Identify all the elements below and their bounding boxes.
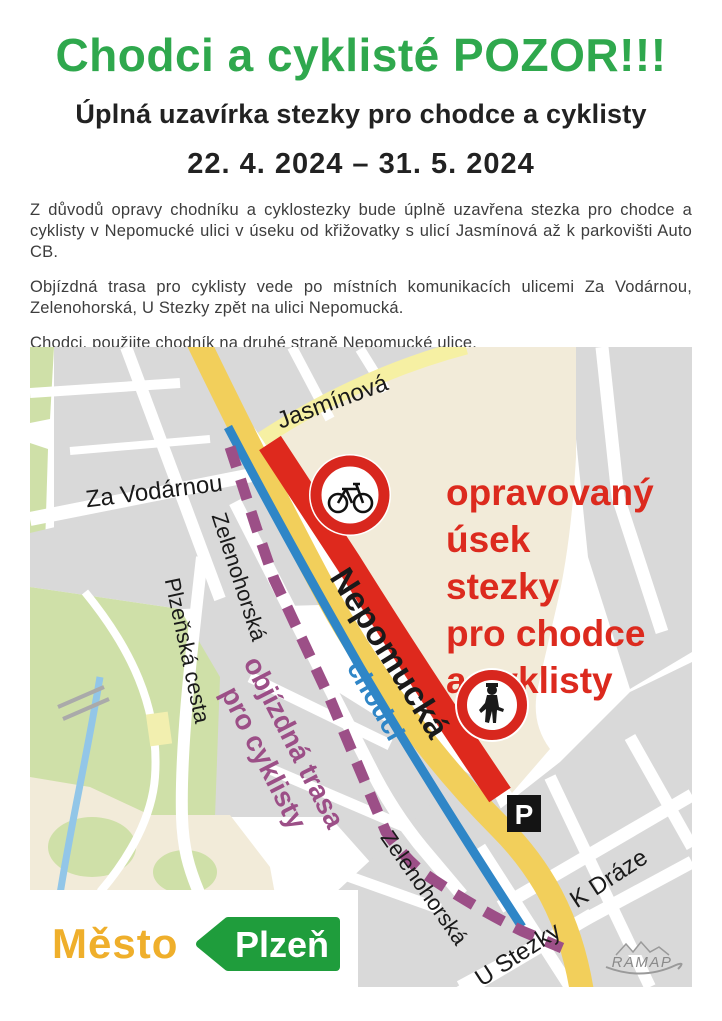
body-text: Z důvodů opravy chodníku a cyklostezky b… [30, 200, 692, 368]
no-bicycles-sign-icon [309, 454, 391, 536]
date-range: 22. 4. 2024 – 31. 5. 2024 [0, 148, 722, 181]
no-pedestrians-sign-icon [455, 668, 529, 742]
repair-line-2: úsek [446, 519, 531, 560]
map-canvas: Jasmínová Za Vodárnou Zelenohorská Plzeň… [30, 347, 692, 987]
city-logo-name: Plzeň [235, 924, 329, 965]
headline: Chodci a cyklisté POZOR!!! [0, 28, 722, 82]
attribution-text: RAMAP [612, 954, 673, 971]
paragraph-closure: Z důvodů opravy chodníku a cyklostezky b… [30, 200, 692, 263]
repair-line-1: opravovaný [446, 472, 654, 513]
city-logo-word: Město [52, 920, 178, 968]
subtitle: Úplná uzavírka stezky pro chodce a cykli… [0, 99, 722, 130]
parking-sign-icon: P [507, 795, 541, 832]
repair-line-3: stezky [446, 566, 560, 607]
map: Jasmínová Za Vodárnou Zelenohorská Plzeň… [30, 347, 692, 987]
green-strip-top [30, 347, 54, 423]
repair-line-4: pro chodce [446, 613, 645, 654]
paragraph-detour: Objízdná trasa pro cyklisty vede po míst… [30, 277, 692, 319]
city-logo: Město Plzeň [52, 912, 344, 976]
park-building [146, 712, 172, 747]
parking-label: P [515, 799, 534, 830]
city-logo-arrow: Plzeň [192, 913, 344, 975]
